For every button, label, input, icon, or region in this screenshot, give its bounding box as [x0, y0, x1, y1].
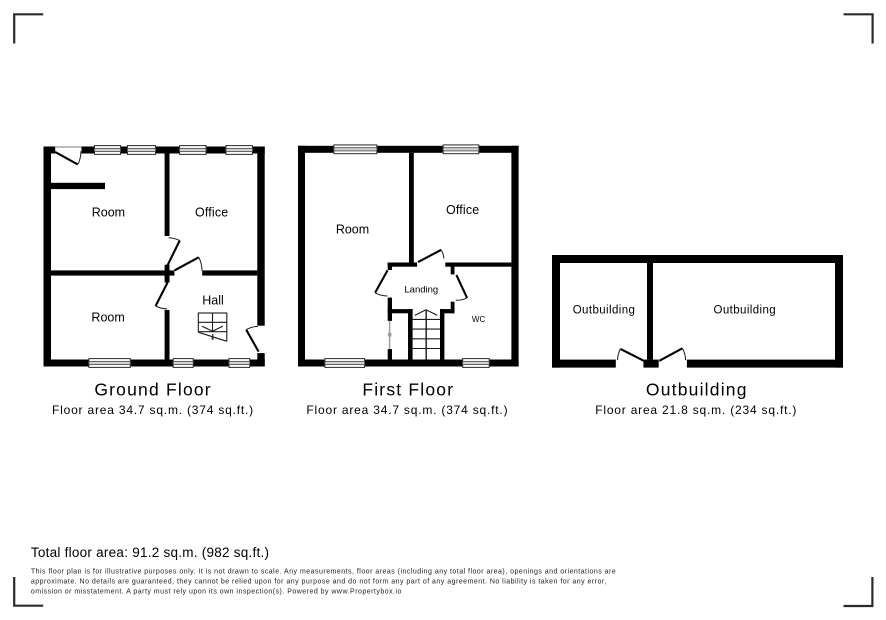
svg-text:Landing: Landing [404, 284, 438, 295]
svg-text:Floor area 21.8 sq.m. (234 sq.: Floor area 21.8 sq.m. (234 sq.ft.) [595, 403, 797, 417]
svg-text:omission or misstatement. A pa: omission or misstatement. A party must r… [31, 589, 402, 596]
svg-text:Room: Room [91, 310, 124, 324]
svg-text:Floor area 34.7 sq.m. (374 sq.: Floor area 34.7 sq.m. (374 sq.ft.) [52, 403, 254, 417]
svg-text:Room: Room [92, 206, 125, 220]
svg-text:First Floor: First Floor [362, 380, 454, 400]
svg-text:Office: Office [195, 206, 228, 220]
svg-text:WC: WC [472, 315, 486, 324]
svg-text:Outbuilding: Outbuilding [646, 380, 748, 400]
svg-text:Office: Office [446, 203, 479, 217]
svg-text:Total floor area: 91.2 sq.m. (: Total floor area: 91.2 sq.m. (982 sq.ft.… [31, 545, 269, 560]
svg-text:Ground Floor: Ground Floor [94, 380, 212, 400]
svg-text:Outbuilding: Outbuilding [714, 305, 777, 317]
svg-text:approximate. No details are gu: approximate. No details are guaranteed, … [31, 579, 607, 586]
svg-text:Floor area 34.7 sq.m. (374 sq.: Floor area 34.7 sq.m. (374 sq.ft.) [306, 403, 508, 417]
svg-text:Outbuilding: Outbuilding [573, 305, 636, 317]
svg-text:This floor plan is for illustr: This floor plan is for illustrative purp… [31, 568, 616, 575]
svg-text:Room: Room [336, 223, 369, 237]
svg-text:Hall: Hall [202, 294, 224, 308]
